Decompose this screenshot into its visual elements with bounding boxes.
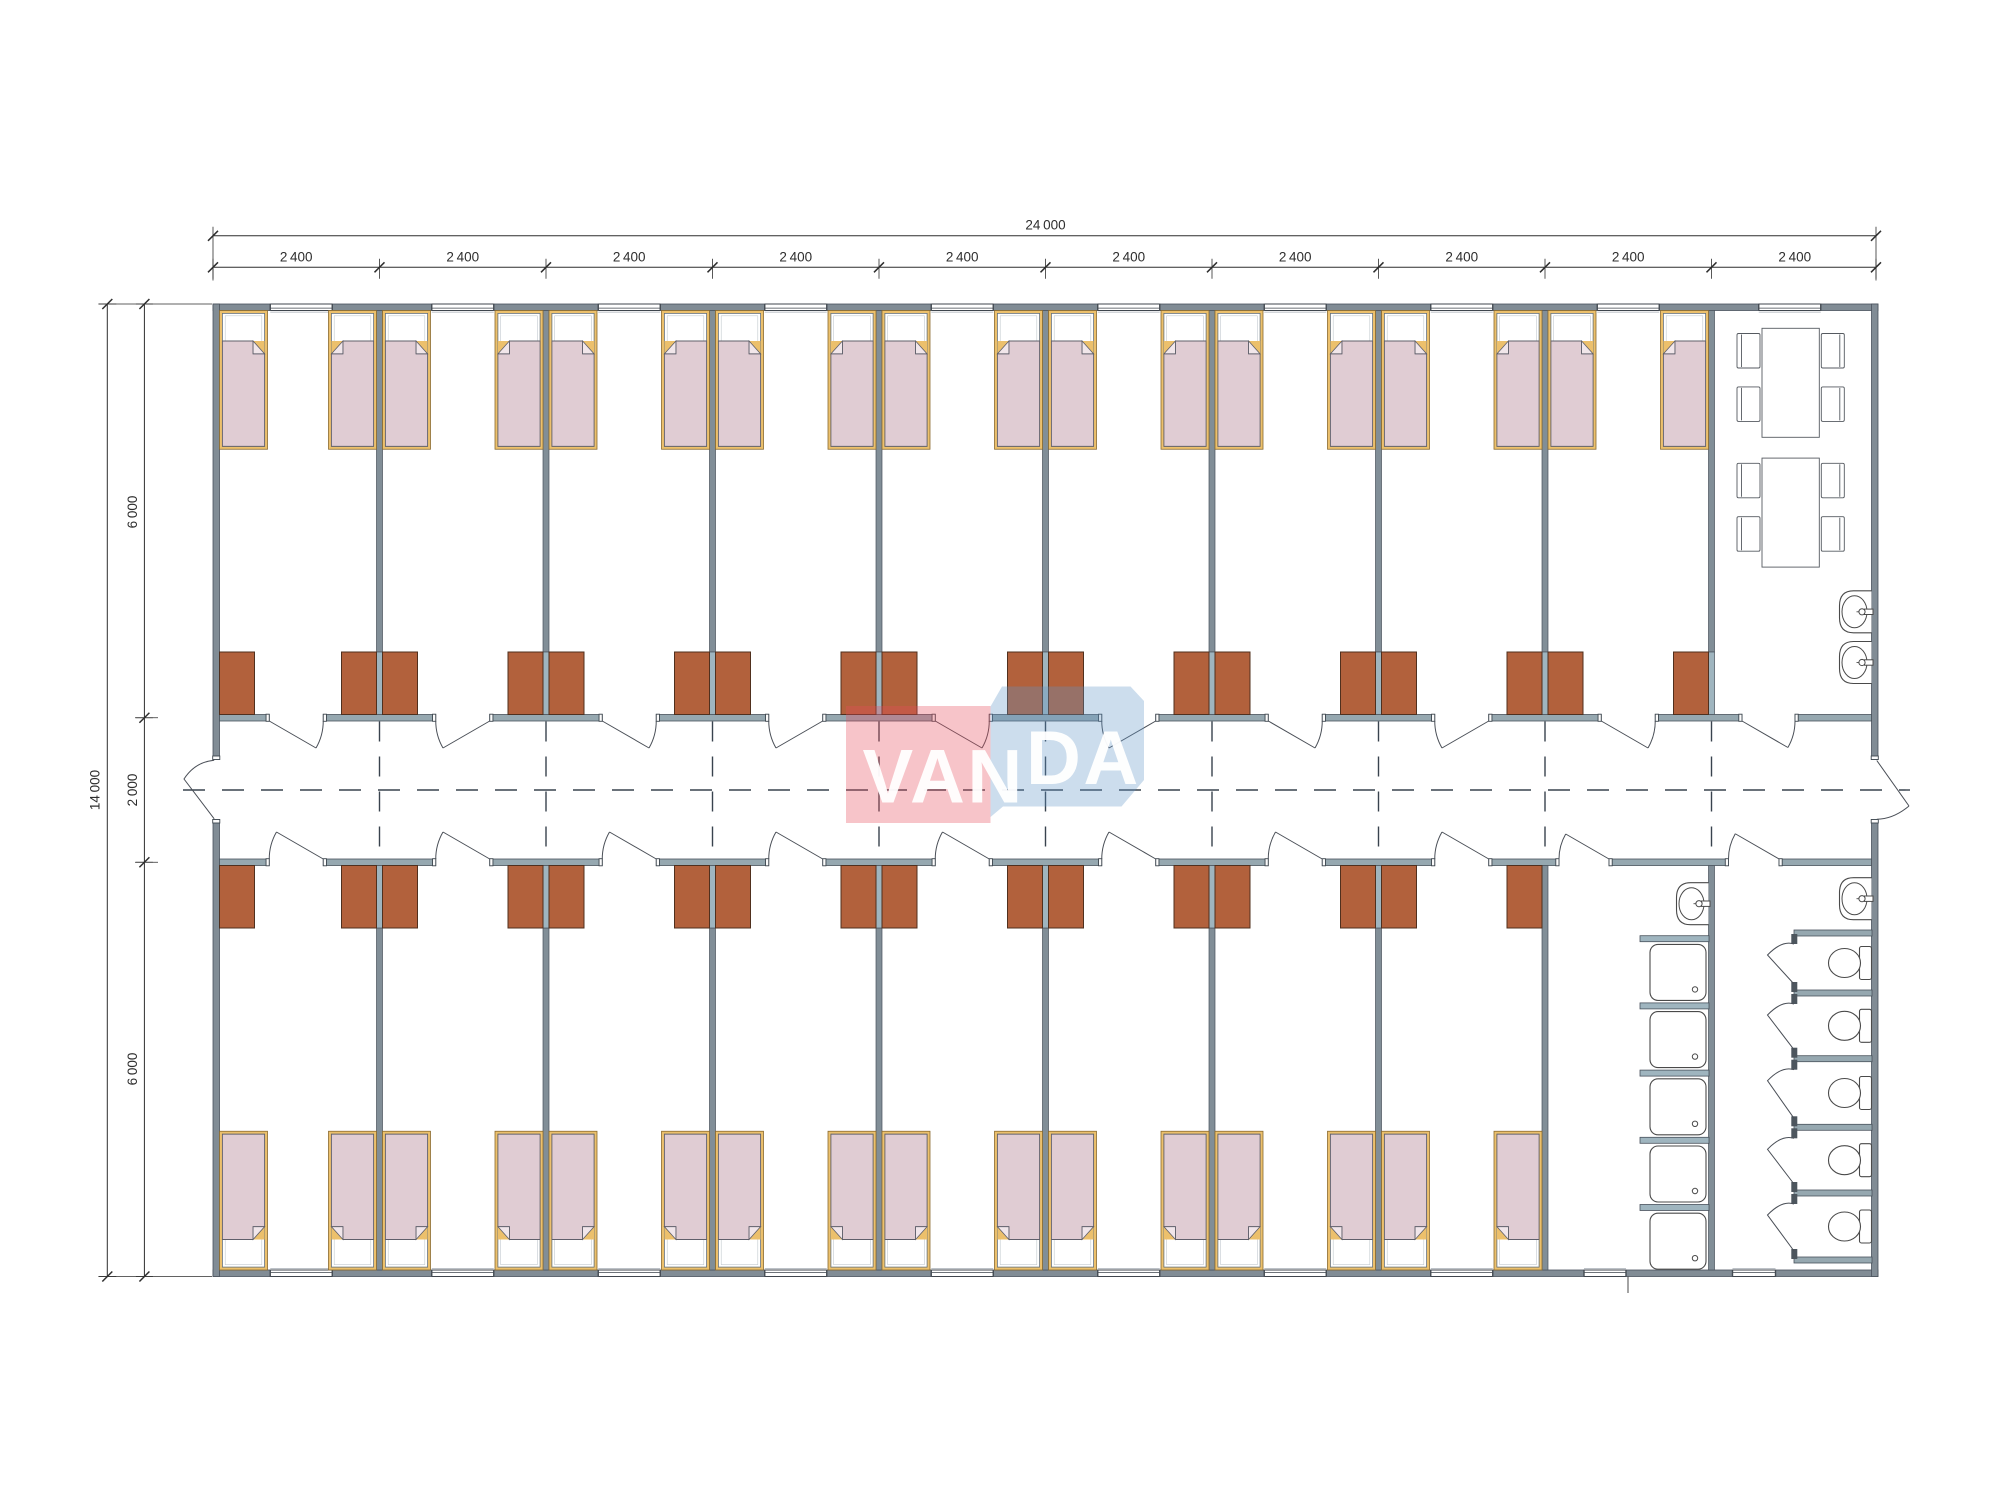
svg-text:2 400: 2 400 — [446, 250, 479, 265]
svg-text:2 400: 2 400 — [1112, 250, 1145, 265]
svg-text:2 400: 2 400 — [779, 250, 812, 265]
svg-text:24 000: 24 000 — [1025, 218, 1065, 233]
svg-text:6 000: 6 000 — [125, 1053, 140, 1086]
svg-text:2 400: 2 400 — [1279, 250, 1312, 265]
svg-text:2 400: 2 400 — [280, 250, 313, 265]
svg-text:2 400: 2 400 — [1445, 250, 1478, 265]
svg-text:2 000: 2 000 — [125, 774, 140, 807]
svg-text:2 400: 2 400 — [946, 250, 979, 265]
svg-text:14 000: 14 000 — [88, 770, 103, 810]
svg-text:2 400: 2 400 — [613, 250, 646, 265]
svg-text:VAN: VAN — [863, 735, 1025, 820]
svg-text:2 400: 2 400 — [1778, 250, 1811, 265]
svg-text:DA: DA — [1026, 716, 1141, 801]
svg-text:6 000: 6 000 — [125, 496, 140, 529]
svg-text:2 400: 2 400 — [1612, 250, 1645, 265]
